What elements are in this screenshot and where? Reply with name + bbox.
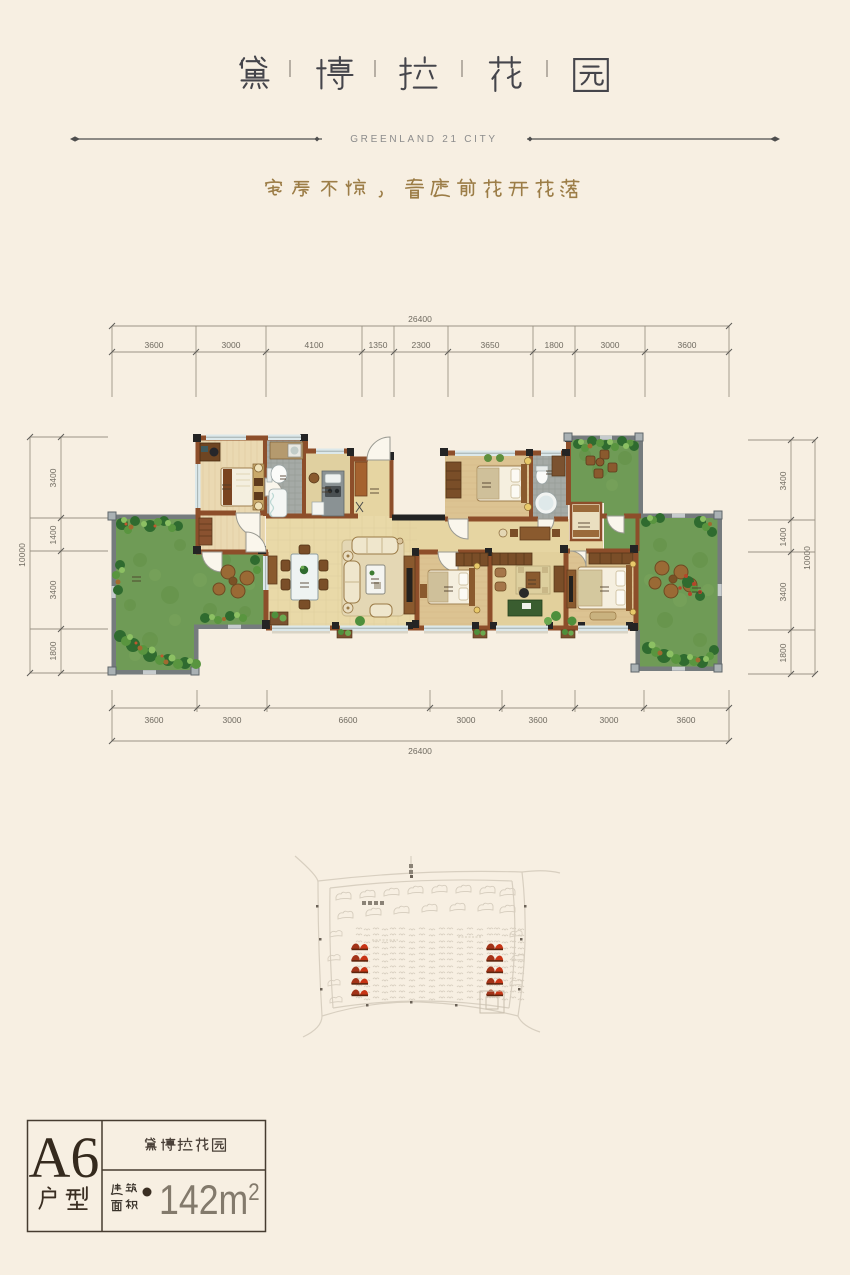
svg-text:142m2: 142m2 [159,1177,260,1223]
svg-text:3600: 3600 [678,340,697,350]
svg-text:26400: 26400 [408,314,432,324]
svg-text:3650: 3650 [481,340,500,350]
svg-text:1400: 1400 [778,527,788,546]
svg-text:3400: 3400 [48,468,58,487]
svg-text:3000: 3000 [457,715,476,725]
svg-text:10000: 10000 [802,546,812,570]
svg-text:3400: 3400 [778,471,788,490]
svg-text:3600: 3600 [677,715,696,725]
svg-text:1800: 1800 [778,643,788,662]
svg-text:1400: 1400 [48,525,58,544]
svg-text:10000: 10000 [17,543,27,567]
svg-text:3400: 3400 [778,582,788,601]
svg-text:3000: 3000 [223,715,242,725]
svg-text:3000: 3000 [601,340,620,350]
svg-text:A6: A6 [29,1125,100,1190]
svg-text:1800: 1800 [48,641,58,660]
svg-text:6600: 6600 [339,715,358,725]
svg-text:3000: 3000 [600,715,619,725]
svg-text:2300: 2300 [412,340,431,350]
svg-text:3000: 3000 [222,340,241,350]
svg-text:GREENLAND 21 CITY: GREENLAND 21 CITY [350,134,498,145]
svg-text:3600: 3600 [529,715,548,725]
svg-text:4100: 4100 [305,340,324,350]
svg-text:26400: 26400 [408,746,432,756]
svg-text:3600: 3600 [145,340,164,350]
svg-text:1800: 1800 [545,340,564,350]
svg-text:1350: 1350 [369,340,388,350]
svg-text:3400: 3400 [48,580,58,599]
svg-text:3600: 3600 [145,715,164,725]
